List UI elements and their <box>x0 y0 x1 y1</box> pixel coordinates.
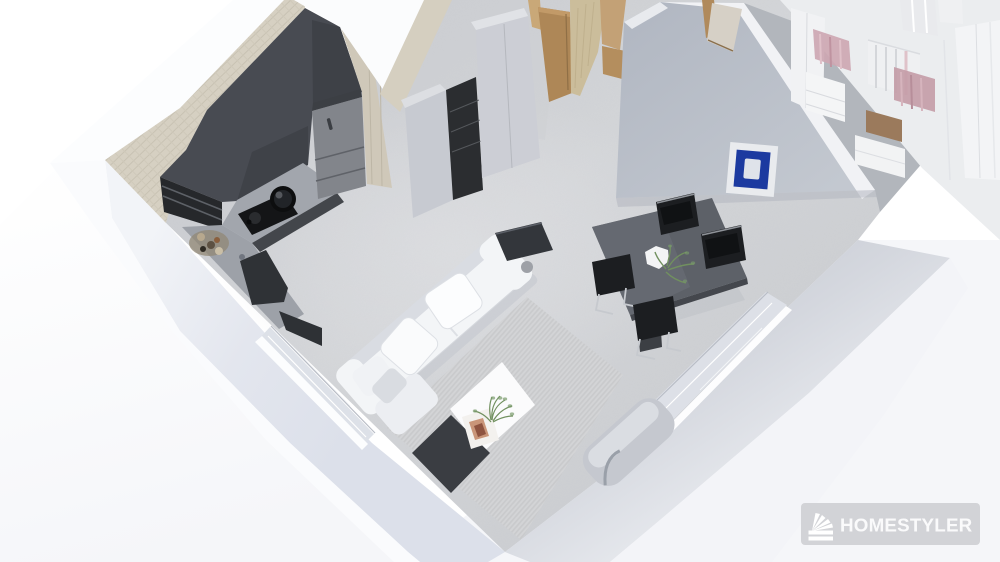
svg-text:HOMESTYLER: HOMESTYLER <box>840 515 973 536</box>
